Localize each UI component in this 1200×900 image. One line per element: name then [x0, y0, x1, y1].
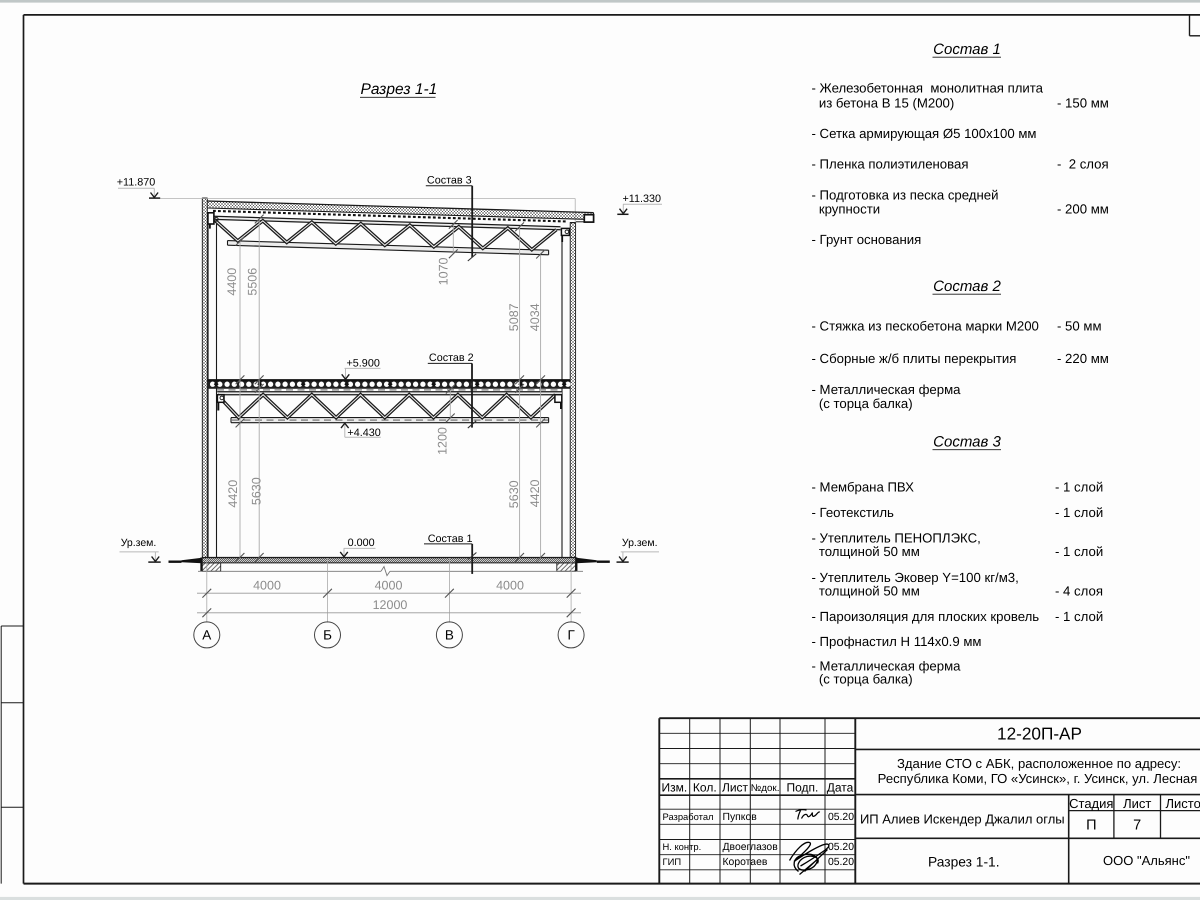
svg-text:Разрез 1-1.: Разрез 1-1.	[928, 854, 1000, 869]
svg-text:(с торца балка): (с торца балка)	[812, 396, 913, 411]
svg-text:1070: 1070	[436, 257, 450, 285]
svg-text:- 150 мм: - 150 мм	[1057, 96, 1109, 111]
svg-text:- Подготовка из песка средней: - Подготовка из песка средней	[812, 187, 999, 202]
svg-text:- 220 мм: - 220 мм	[1057, 351, 1109, 366]
svg-text:крупности: крупности	[812, 202, 881, 217]
svg-text:толщиной 50 мм: толщиной 50 мм	[812, 544, 920, 559]
svg-text:+5.900: +5.900	[347, 358, 380, 370]
svg-text:+11.870: +11.870	[117, 176, 156, 188]
svg-text:- Металлическая ферма: - Металлическая ферма	[812, 382, 962, 397]
svg-text:4420: 4420	[226, 480, 240, 508]
svg-text:4000: 4000	[375, 579, 403, 593]
svg-text:Здание СТО с АБК, расположенно: Здание СТО с АБК, расположенное по адрес…	[897, 756, 1181, 771]
svg-text:Б: Б	[323, 628, 332, 643]
svg-text:Кол.: Кол.	[693, 781, 717, 795]
svg-text:Разрез 1-1: Разрез 1-1	[361, 81, 438, 98]
svg-text:Листов: Листов	[1166, 796, 1200, 811]
svg-text:4000: 4000	[253, 579, 281, 593]
svg-text:Республика Коми, ГО «Усинск»,: Республика Коми, ГО «Усинск», г. Усинск,…	[878, 771, 1198, 786]
svg-text:- 50 мм: - 50 мм	[1057, 319, 1102, 334]
svg-text:- Сетка армирующая Ø5 100х100: - Сетка армирующая Ø5 100х100 мм	[812, 126, 1037, 141]
svg-text:Разработал: Разработал	[663, 811, 714, 822]
svg-text:Ур.зем.: Ур.зем.	[622, 537, 658, 549]
svg-text:- Геотекстиль: - Геотекстиль	[812, 505, 895, 520]
svg-text:5630: 5630	[249, 477, 263, 505]
svg-text:Состав 2: Состав 2	[429, 352, 474, 364]
svg-text:Ур.зем.: Ур.зем.	[121, 537, 157, 549]
svg-text:- 200 мм: - 200 мм	[1057, 202, 1109, 217]
svg-text:4400: 4400	[225, 268, 239, 296]
svg-text:- Пленка полиэтиленовая: - Пленка полиэтиленовая	[812, 157, 969, 172]
svg-text:(с торца балка): (с торца балка)	[812, 672, 913, 687]
svg-text:№док.: №док.	[751, 783, 780, 794]
svg-text:5506: 5506	[245, 268, 259, 296]
svg-text:5630: 5630	[507, 480, 521, 508]
svg-text:4034: 4034	[528, 303, 542, 331]
svg-text:Состав 1: Состав 1	[428, 533, 473, 545]
svg-text:- 1 слой: - 1 слой	[1055, 544, 1103, 559]
svg-text:- Профнастил Н 114х0.9 мм: - Профнастил Н 114х0.9 мм	[812, 634, 982, 649]
svg-text:Лист: Лист	[1123, 796, 1151, 811]
svg-text:05.20: 05.20	[828, 857, 854, 868]
svg-text:- 1 слой: - 1 слой	[1055, 479, 1103, 494]
svg-text:В: В	[445, 628, 454, 643]
svg-text:05.20: 05.20	[828, 842, 854, 853]
svg-text:П: П	[1086, 818, 1096, 834]
svg-text:- 1 слой: - 1 слой	[1055, 609, 1103, 624]
svg-text:Состав 3: Состав 3	[427, 174, 472, 186]
svg-text:+11.330: +11.330	[623, 193, 662, 205]
svg-text:Пупков: Пупков	[723, 812, 758, 823]
svg-text:Стадия: Стадия	[1069, 796, 1113, 811]
svg-text:- Грунт основания: - Грунт основания	[812, 232, 922, 247]
svg-text:7: 7	[1133, 818, 1141, 834]
svg-text:4420: 4420	[528, 479, 542, 507]
svg-text:- Мембрана ПВХ: - Мембрана ПВХ	[812, 479, 915, 494]
svg-text:Дата: Дата	[827, 781, 854, 795]
svg-text:- 1 слой: - 1 слой	[1055, 505, 1103, 520]
svg-text:- 4 слоя: - 4 слоя	[1055, 583, 1103, 598]
svg-text:- Пароизоляция для плоских кро: - Пароизоляция для плоских кровель	[812, 609, 1040, 624]
svg-text:12000: 12000	[373, 598, 408, 612]
svg-text:Коротаев: Коротаев	[723, 857, 768, 868]
svg-text:ООО "Альянс": ООО "Альянс"	[1103, 853, 1190, 868]
svg-text:Лист: Лист	[722, 781, 749, 795]
svg-text:- Железобетонная монолитная п: - Железобетонная монолитная плита	[812, 80, 1044, 95]
svg-text:Г: Г	[567, 628, 575, 643]
svg-text:ГИП: ГИП	[663, 856, 682, 867]
svg-text:Изм.: Изм.	[662, 781, 688, 795]
svg-text:из бетона В 15 (М200): из бетона В 15 (М200)	[812, 96, 955, 111]
svg-text:- Стяжка из пескобетона марки: - Стяжка из пескобетона марки М200	[812, 319, 1039, 334]
svg-text:0.000: 0.000	[348, 537, 375, 549]
svg-text:Состав 3: Состав 3	[933, 434, 1001, 451]
svg-text:4000: 4000	[496, 579, 524, 593]
svg-text:Подп.: Подп.	[786, 781, 818, 795]
svg-text:толщиной 50 мм: толщиной 50 мм	[812, 583, 920, 598]
svg-text:- Сборные ж/б плиты перекрытия: - Сборные ж/б плиты перекрытия	[812, 351, 1017, 366]
svg-text:- 2 слоя: - 2 слоя	[1057, 157, 1109, 172]
svg-text:Н. контр.: Н. контр.	[663, 841, 702, 852]
svg-text:5087: 5087	[507, 303, 521, 331]
svg-text:05.20: 05.20	[828, 812, 854, 823]
svg-text:Состав 2: Состав 2	[933, 278, 1001, 295]
svg-text:А: А	[202, 628, 211, 643]
svg-text:ИП Алиев Искендер Джалил оглы: ИП Алиев Искендер Джалил оглы	[860, 812, 1065, 827]
svg-text:12-20П-АР: 12-20П-АР	[997, 723, 1082, 743]
svg-text:Состав 1: Состав 1	[933, 41, 1001, 58]
svg-text:Двоеглазов: Двоеглазов	[723, 842, 779, 853]
svg-text:1200: 1200	[436, 427, 450, 455]
